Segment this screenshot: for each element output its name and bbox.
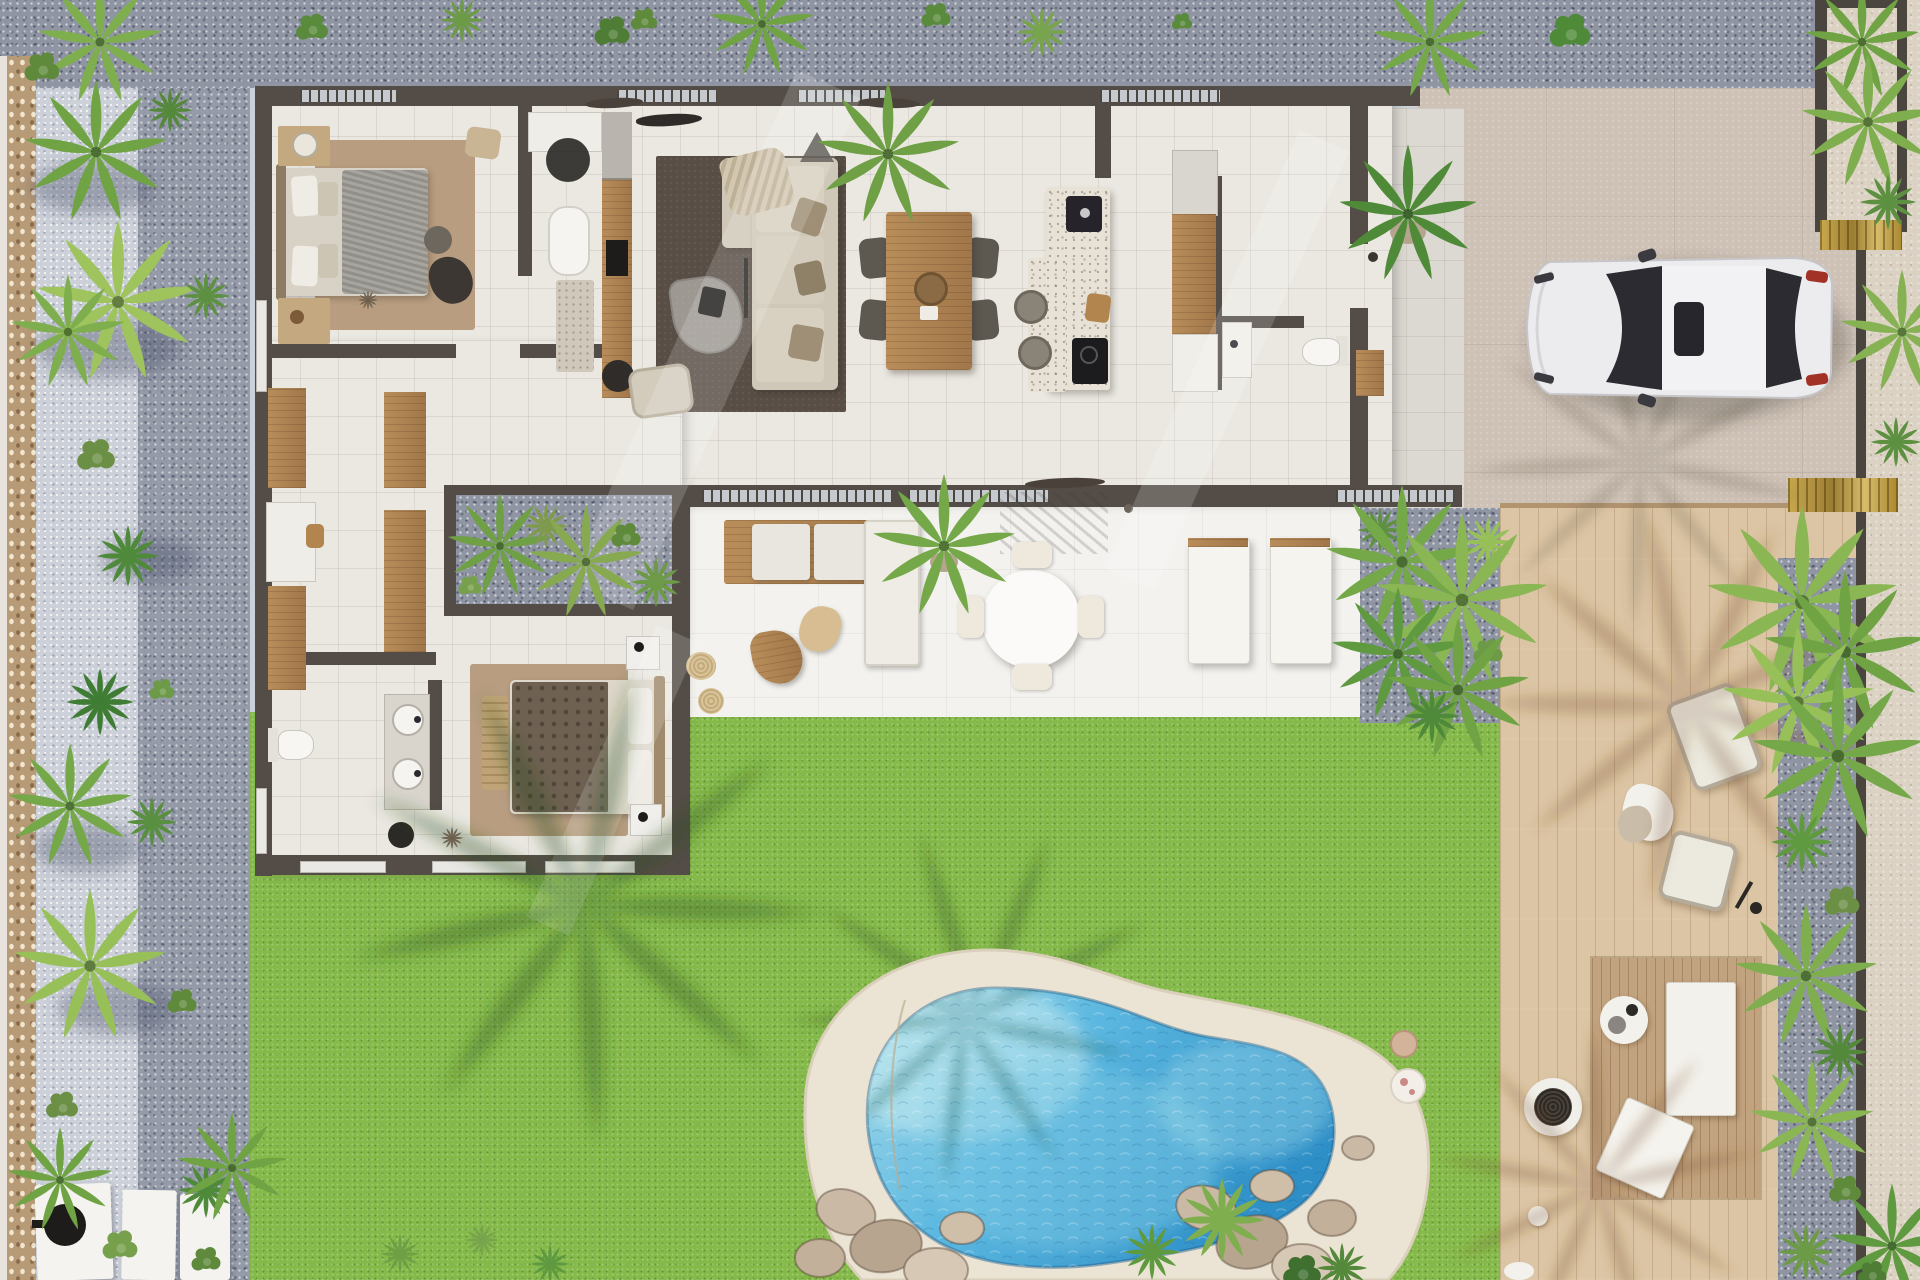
deck-planting-bed: [1778, 558, 1860, 1280]
wall-bedroom1-south-a: [272, 344, 456, 358]
interior-planter: [450, 494, 678, 610]
bed-bench: [482, 696, 508, 790]
stool: [388, 822, 414, 848]
sun-lounger-head: [1188, 538, 1248, 547]
bed-master-blanket: [342, 170, 428, 294]
window-top-4: [1100, 90, 1220, 102]
stool: [424, 226, 452, 254]
pouf: [464, 126, 502, 160]
door-handle: [1368, 252, 1378, 262]
sun-lounger-head: [1270, 538, 1330, 547]
straw-pouf: [686, 652, 716, 680]
burner: [1080, 346, 1098, 364]
outdoor-chair: [1012, 542, 1052, 568]
nightstand: [626, 636, 660, 670]
bed-master-headboard: [276, 164, 286, 300]
front-planter: [1827, 8, 1897, 220]
gate-pier-top: [1820, 220, 1902, 250]
decor-tray: [1504, 1262, 1534, 1280]
desk-chair: [306, 524, 324, 548]
tray-item: [1626, 1004, 1638, 1016]
wardrobe-left: [268, 388, 306, 488]
wc-vanity: [1222, 322, 1252, 378]
wardrobe-right: [384, 392, 426, 488]
tray-item: [1608, 1016, 1626, 1034]
bathtub: [548, 206, 590, 276]
daybed: [1666, 982, 1736, 1116]
planter-wall-left: [444, 485, 456, 613]
kitchen-counter-fridge: [1172, 150, 1218, 216]
outdoor-chair: [1078, 596, 1104, 638]
planter-wall-bottom: [444, 604, 690, 616]
wc-faucet: [1230, 340, 1238, 348]
pillow: [318, 182, 338, 216]
kitchen-counter-base: [1172, 334, 1218, 392]
site-plan: [0, 0, 1920, 1280]
shower-pad: [556, 280, 594, 372]
outdoor-chaise: [864, 520, 920, 666]
table-centerpiece: [914, 272, 948, 306]
pillow: [628, 688, 652, 744]
wall-knob: [1124, 504, 1133, 513]
window-bottom-1: [300, 861, 386, 873]
pillow: [291, 245, 319, 286]
terrace-planting-bed: [1360, 505, 1502, 723]
pillow: [318, 244, 338, 278]
sun-lounger: [1270, 538, 1332, 664]
sun-lounger: [1188, 538, 1250, 664]
outdoor-chair: [1012, 664, 1052, 690]
wardrobe-left-2: [268, 586, 306, 690]
window-bottom-2: [432, 861, 526, 873]
table-lamp: [292, 132, 318, 158]
pillow: [291, 175, 320, 217]
driveway: [1418, 88, 1858, 508]
gravel-band-top: [0, 0, 1825, 88]
wall-entry-a: [1350, 104, 1368, 244]
wall-kitchen-stub: [1095, 104, 1111, 178]
kitchen-island-ext: [1028, 258, 1066, 392]
table-lamp: [638, 812, 648, 822]
bath1-rug: [546, 138, 590, 182]
outdoor-chair: [958, 596, 984, 638]
armchair: [627, 362, 695, 420]
faucet: [414, 716, 421, 723]
stone-edge: [6, 56, 36, 1280]
pillow: [628, 750, 652, 806]
bar-stool: [1014, 290, 1048, 324]
stepping-stone: [180, 1194, 230, 1280]
fire-pit-handle: [32, 1220, 46, 1228]
kitchen-counter-wood: [1172, 214, 1216, 334]
toilet: [1302, 338, 1340, 366]
fire-pit-black: [44, 1204, 86, 1246]
table-setting: [920, 306, 938, 320]
gate-pier-bottom: [1788, 478, 1898, 512]
tv-screen: [606, 240, 628, 276]
decor-ball: [1528, 1206, 1548, 1226]
wall-bedroom2-left: [428, 680, 442, 810]
toilet: [278, 730, 314, 760]
outer-edge: [0, 56, 7, 1280]
bar-stool: [1018, 336, 1052, 370]
faucet: [414, 770, 421, 777]
window-left-1: [256, 300, 267, 392]
sofa-pillow: [787, 323, 824, 362]
wardrobe-right-2: [384, 510, 426, 652]
bed-2-sheet: [608, 682, 626, 812]
window-left-2: [256, 788, 267, 854]
fire-bowl-inner: [1534, 1088, 1572, 1126]
deck-lamp: [1750, 902, 1762, 914]
planter-wall-top: [444, 485, 690, 495]
decor-tray: [290, 310, 304, 324]
straw-pouf: [698, 688, 724, 714]
slider-terrace-3: [1336, 490, 1454, 502]
gravel-strip-dark: [138, 0, 250, 1280]
bed-2-blanket: [512, 682, 610, 812]
window-top-1: [300, 90, 396, 102]
outdoor-sofa-cushion: [752, 524, 810, 580]
nightstand: [278, 298, 330, 344]
wall-entry-b: [1350, 308, 1368, 490]
table-lamp: [634, 642, 644, 652]
tv-wall-shelf: [602, 112, 632, 180]
stepping-stone: [121, 1190, 177, 1280]
cutting-board: [1084, 293, 1111, 324]
entry-console: [1356, 350, 1384, 396]
bed-2-headboard: [654, 676, 665, 818]
outdoor-dining-table: [982, 570, 1080, 668]
window-bottom-3: [545, 861, 635, 873]
faucet: [1080, 208, 1090, 218]
plant-stand: [744, 258, 748, 318]
slider-terrace-1: [702, 490, 892, 502]
toilet-tank: [268, 728, 278, 762]
perimeter-wall: [1856, 245, 1866, 1280]
